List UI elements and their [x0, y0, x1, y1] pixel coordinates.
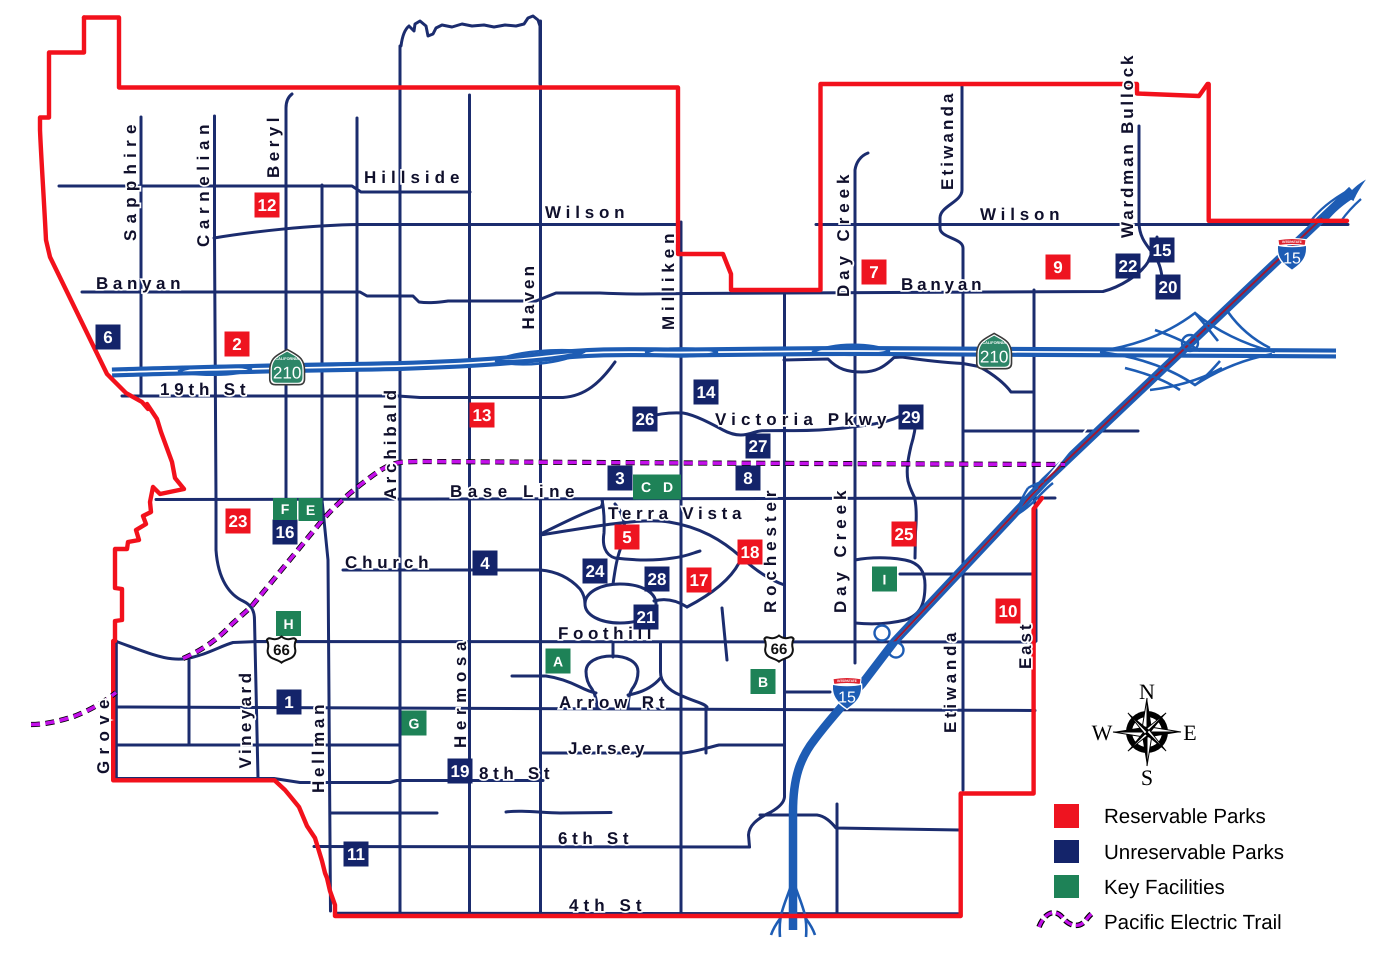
svg-text:23: 23 [229, 512, 248, 531]
svg-text:21: 21 [637, 608, 656, 627]
svg-text:210: 210 [273, 365, 302, 383]
svg-text:E: E [306, 502, 315, 518]
svg-text:Jersey: Jersey [568, 739, 648, 758]
svg-text:Pacific Electric Trail: Pacific Electric Trail [1104, 911, 1282, 934]
svg-text:6th St: 6th St [558, 829, 632, 848]
svg-text:13: 13 [473, 406, 492, 425]
svg-text:Sapphire: Sapphire [121, 121, 140, 241]
svg-text:4: 4 [480, 554, 490, 573]
svg-text:Wardman Bullock: Wardman Bullock [1118, 52, 1137, 238]
svg-text:INTERSTATE: INTERSTATE [837, 679, 857, 683]
svg-text:Hellman: Hellman [309, 701, 328, 793]
svg-text:12: 12 [258, 196, 277, 215]
svg-text:Banyan: Banyan [96, 274, 184, 293]
svg-text:C: C [641, 479, 651, 495]
svg-text:3: 3 [615, 469, 624, 488]
svg-text:7: 7 [869, 263, 878, 282]
svg-text:Vineyard: Vineyard [236, 670, 255, 769]
svg-text:9: 9 [1053, 258, 1062, 277]
svg-text:14: 14 [697, 383, 716, 402]
svg-text:INTERSTATE: INTERSTATE [1282, 240, 1302, 244]
svg-text:CALIFORNIA: CALIFORNIA [982, 341, 1006, 345]
svg-text:Key Facilities: Key Facilities [1104, 876, 1225, 899]
svg-text:15: 15 [838, 690, 856, 707]
svg-text:15: 15 [1153, 241, 1172, 260]
svg-text:Beryl: Beryl [264, 114, 283, 178]
svg-text:8: 8 [743, 469, 752, 488]
svg-text:66: 66 [771, 641, 788, 658]
svg-text:Unreservable Parks: Unreservable Parks [1104, 841, 1284, 864]
svg-text:B: B [758, 674, 768, 690]
svg-text:CALIFORNIA: CALIFORNIA [275, 357, 299, 361]
svg-text:2: 2 [232, 335, 241, 354]
svg-text:Wilson: Wilson [980, 205, 1063, 224]
svg-text:W: W [1092, 720, 1113, 745]
svg-text:6: 6 [103, 328, 112, 347]
svg-text:Terra Vista: Terra Vista [608, 504, 745, 523]
svg-text:Base Line: Base Line [450, 482, 578, 501]
svg-text:210: 210 [980, 349, 1009, 367]
svg-text:28: 28 [648, 570, 667, 589]
svg-text:16: 16 [276, 523, 295, 542]
svg-text:15: 15 [1283, 251, 1301, 268]
svg-text:East: East [1016, 621, 1035, 669]
svg-text:20: 20 [1159, 278, 1178, 297]
svg-text:H: H [283, 616, 293, 632]
svg-text:S: S [1141, 765, 1153, 790]
svg-text:22: 22 [1119, 257, 1138, 276]
svg-text:66: 66 [273, 642, 290, 659]
svg-text:Day Creek: Day Creek [831, 487, 850, 613]
svg-text:Haven: Haven [519, 263, 538, 330]
svg-text:N: N [1139, 679, 1155, 704]
svg-text:27: 27 [749, 437, 768, 456]
svg-text:Archibald: Archibald [381, 387, 400, 500]
svg-text:Church: Church [345, 553, 432, 572]
svg-text:Victoria Pkwy: Victoria Pkwy [715, 410, 890, 429]
svg-text:G: G [409, 716, 420, 732]
svg-text:Hillside: Hillside [364, 168, 463, 187]
svg-text:Etiwanda: Etiwanda [938, 90, 957, 190]
svg-text:4th St: 4th St [569, 896, 645, 915]
svg-text:Grove: Grove [94, 696, 113, 774]
svg-text:19th St: 19th St [160, 380, 249, 399]
svg-text:25: 25 [895, 525, 914, 544]
svg-text:D: D [663, 479, 673, 495]
svg-text:8th St: 8th St [479, 764, 553, 783]
svg-text:F: F [281, 501, 290, 517]
svg-text:I: I [883, 572, 887, 588]
svg-text:1: 1 [284, 693, 293, 712]
svg-text:18: 18 [741, 543, 760, 562]
svg-text:Banyan: Banyan [901, 275, 985, 294]
svg-text:Wilson: Wilson [545, 203, 628, 222]
svg-text:10: 10 [999, 602, 1018, 621]
svg-text:Day Creek: Day Creek [834, 171, 853, 297]
svg-text:26: 26 [636, 410, 655, 429]
svg-text:19: 19 [451, 762, 470, 781]
svg-text:A: A [553, 654, 563, 670]
svg-text:Reservable Parks: Reservable Parks [1104, 805, 1266, 828]
svg-text:5: 5 [622, 528, 631, 547]
svg-text:11: 11 [347, 845, 365, 864]
svg-text:E: E [1183, 720, 1196, 745]
svg-text:Rochester: Rochester [761, 487, 780, 613]
svg-text:24: 24 [586, 562, 605, 581]
svg-text:17: 17 [690, 571, 709, 590]
svg-text:Carnelian: Carnelian [194, 121, 213, 247]
svg-text:29: 29 [902, 408, 921, 427]
svg-text:Arrow Rt: Arrow Rt [559, 693, 668, 712]
svg-text:Etiwanda: Etiwanda [941, 629, 960, 733]
